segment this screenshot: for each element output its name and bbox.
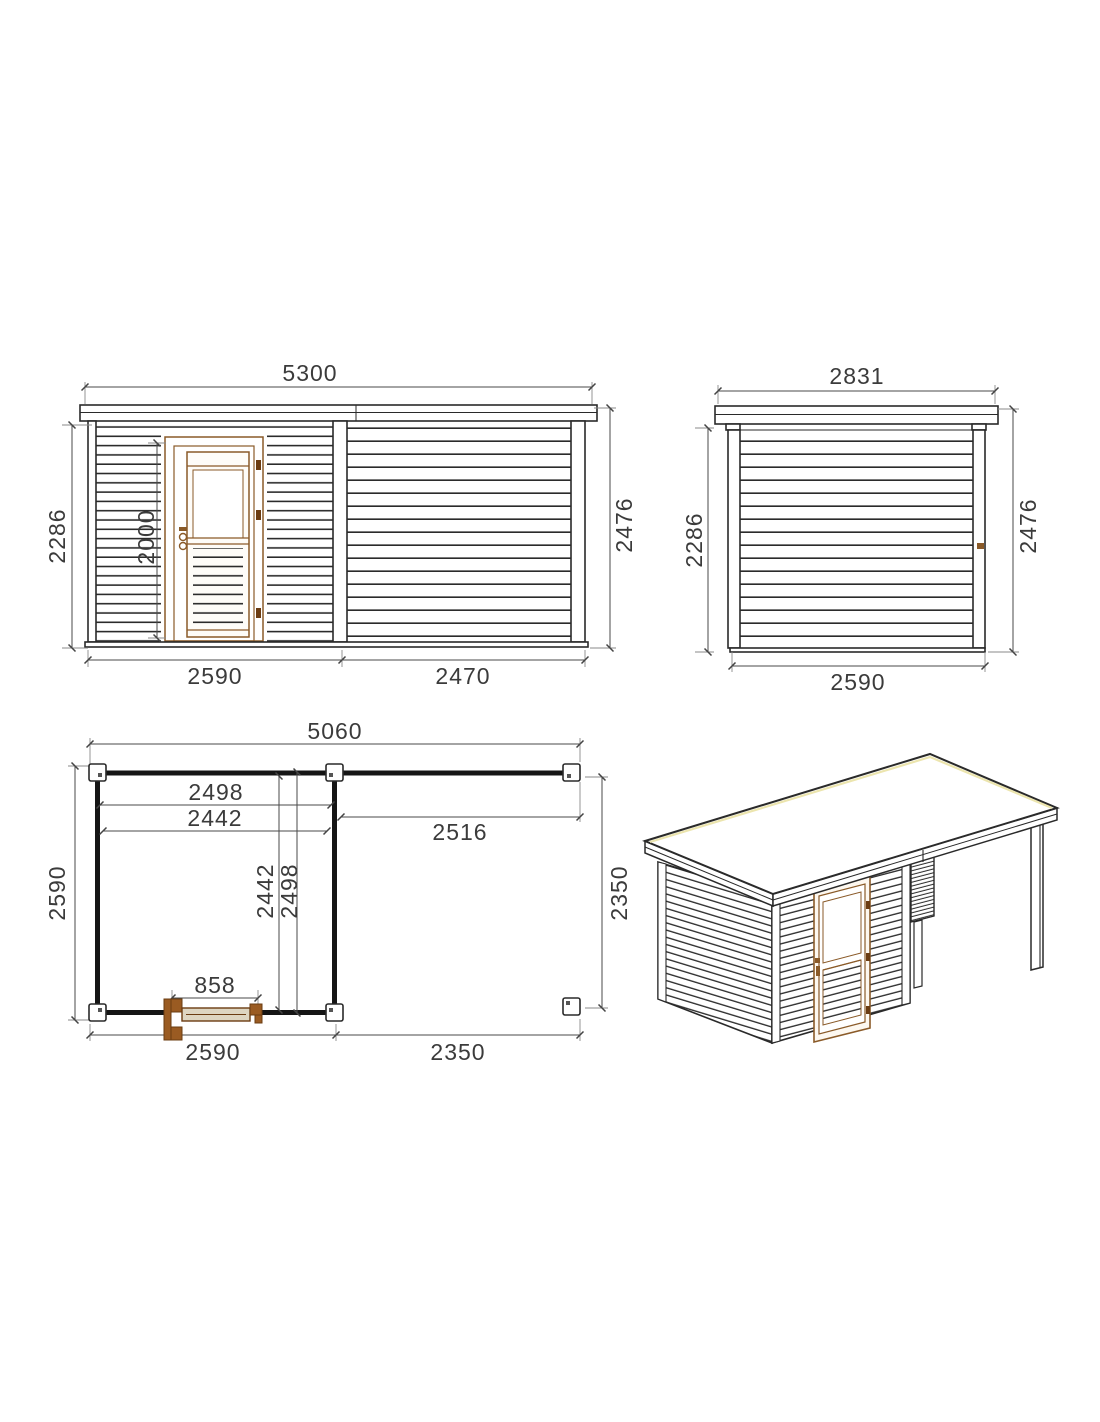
post — [89, 1004, 106, 1021]
side-hinge-mark — [977, 543, 984, 549]
front-roof — [80, 405, 597, 421]
isometric-3d-view — [645, 754, 1057, 1043]
technical-drawing-sheet: 5300 2286 2000 2476 2590 2470 — [0, 0, 1100, 1422]
side-roof — [715, 406, 998, 430]
dim-plan-room-outer-width: 2498 — [188, 779, 243, 805]
post — [563, 998, 580, 1015]
side-wall — [728, 430, 985, 648]
dim-side-wall-height: 2286 — [681, 512, 707, 567]
dim-plan-left-depth: 2590 — [44, 865, 70, 920]
dim-plan-bottom-canopy-width: 2350 — [430, 1039, 485, 1065]
dim-front-cabin-width: 2590 — [187, 663, 242, 689]
dim-front-overall-height: 2476 — [611, 497, 637, 552]
pergola-front-post — [1031, 816, 1043, 970]
side-elevation-view: 2831 2286 2476 2590 — [681, 363, 1041, 695]
front-elevation-view: 5300 2286 2000 2476 2590 2470 — [44, 360, 637, 689]
dim-front-total-width: 5300 — [282, 360, 337, 386]
door-slat-panel — [193, 548, 243, 630]
dim-side-overall-height: 2476 — [1015, 498, 1041, 553]
plan-walls — [95, 772, 577, 1013]
door-3d-glass — [823, 892, 861, 963]
dim-plan-room-inner-depth: 2442 — [252, 863, 278, 918]
dim-plan-canopy-span: 2516 — [432, 819, 487, 845]
dim-plan-bottom-cabin-width: 2590 — [185, 1039, 240, 1065]
post — [326, 1004, 343, 1021]
floor-plan-view: 5060 2498 2442 2516 2442 2498 2590 2350 — [44, 718, 632, 1065]
cabin-3d-door — [814, 876, 870, 1042]
dim-front-door-height: 2000 — [133, 509, 159, 564]
plan-door — [164, 999, 262, 1040]
pergola-back-post — [911, 852, 934, 988]
front-door — [161, 433, 267, 642]
dim-plan-total-width: 5060 — [307, 718, 362, 744]
dim-side-base-width: 2590 — [830, 669, 885, 695]
side-base — [730, 648, 985, 652]
post — [326, 764, 343, 781]
dim-side-roof-width: 2831 — [829, 363, 884, 389]
door-3d-slats — [823, 960, 861, 1025]
dim-front-wall-height: 2286 — [44, 508, 70, 563]
post — [563, 764, 580, 781]
dim-plan-room-outer-depth: 2498 — [276, 863, 302, 918]
dim-plan-room-inner-width: 2442 — [187, 805, 242, 831]
post — [89, 764, 106, 781]
dim-front-canopy-width: 2470 — [435, 663, 490, 689]
front-base — [85, 642, 588, 647]
door-glass-panel — [193, 470, 243, 538]
dim-plan-door-width: 858 — [194, 972, 235, 998]
dim-plan-right-depth: 2350 — [606, 865, 632, 920]
